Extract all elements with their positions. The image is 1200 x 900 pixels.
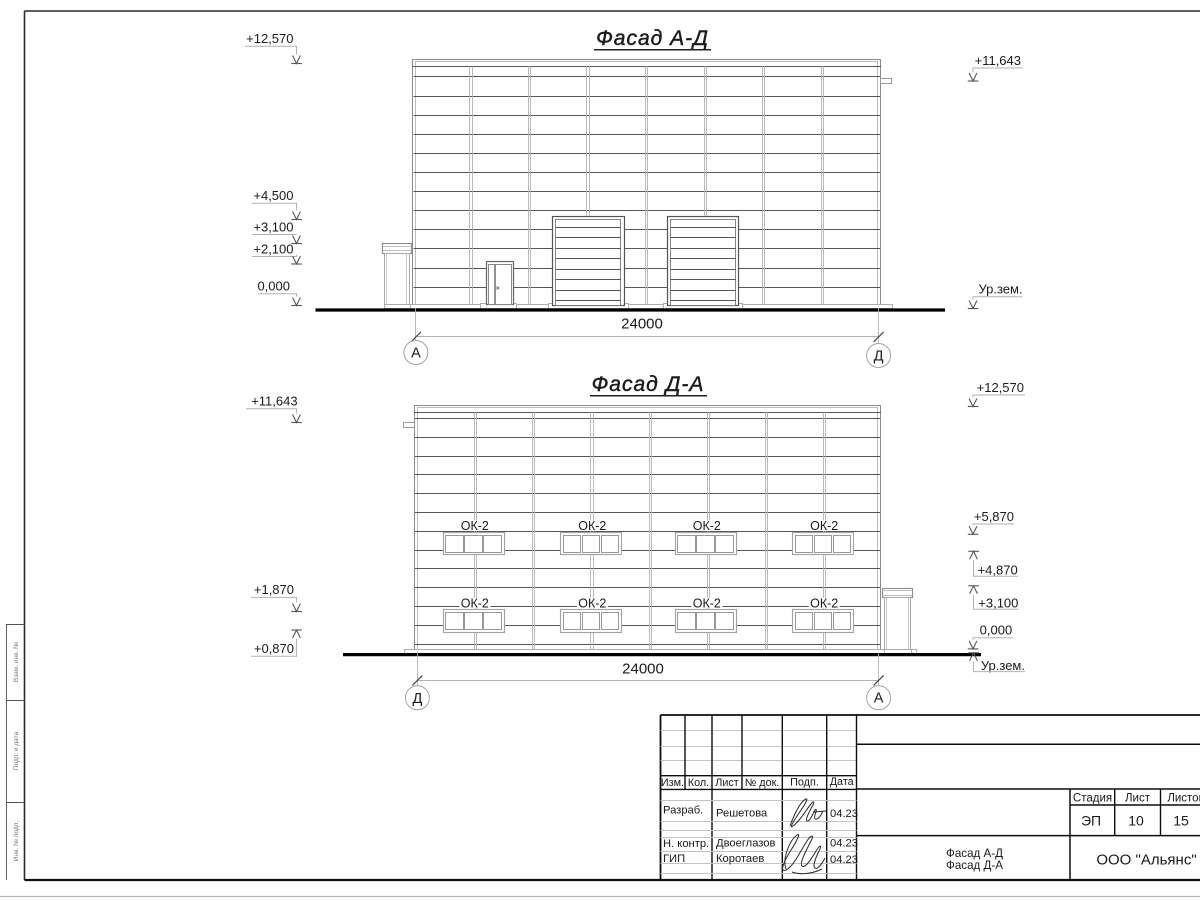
svg-text:Д: Д bbox=[412, 691, 422, 707]
svg-text:+4,870: +4,870 bbox=[978, 562, 1018, 577]
svg-text:Листов: Листов bbox=[1167, 793, 1200, 805]
svg-text:+12,570: +12,570 bbox=[977, 380, 1024, 395]
svg-text:Лист: Лист bbox=[715, 777, 739, 789]
svg-text:ОК-2: ОК-2 bbox=[578, 519, 606, 533]
svg-text:+4,500: +4,500 bbox=[253, 188, 293, 203]
svg-text:ГИП: ГИП bbox=[663, 853, 685, 865]
svg-text:+0,870: +0,870 bbox=[254, 641, 294, 656]
svg-text:Подп. и дата: Подп. и дата bbox=[13, 731, 20, 770]
svg-text:04.23: 04.23 bbox=[830, 854, 858, 866]
svg-text:ОК-2: ОК-2 bbox=[810, 596, 838, 610]
svg-text:+5,870: +5,870 bbox=[974, 509, 1014, 524]
svg-text:24000: 24000 bbox=[621, 316, 663, 333]
svg-text:15: 15 bbox=[1173, 813, 1189, 829]
svg-text:Подп.: Подп. bbox=[790, 777, 819, 789]
svg-text:Кол.: Кол. bbox=[688, 777, 709, 789]
svg-text:ОК-2: ОК-2 bbox=[693, 519, 721, 533]
svg-text:+11,643: +11,643 bbox=[251, 394, 297, 409]
svg-text:04.23: 04.23 bbox=[830, 837, 858, 849]
svg-text:Н. контр.: Н. контр. bbox=[663, 838, 709, 850]
svg-text:ЭП: ЭП bbox=[1081, 813, 1101, 829]
svg-text:Д: Д bbox=[874, 349, 884, 365]
svg-text:Фасад Д-А: Фасад Д-А bbox=[592, 373, 705, 396]
svg-text:Разраб.: Разраб. bbox=[663, 805, 703, 817]
svg-text:Изм.: Изм. bbox=[661, 777, 684, 789]
svg-text:А: А bbox=[874, 691, 884, 707]
svg-text:24000: 24000 bbox=[622, 661, 664, 678]
svg-text:+3,100: +3,100 bbox=[253, 219, 293, 234]
svg-text:Лист: Лист bbox=[1125, 793, 1151, 805]
svg-text:ОК-2: ОК-2 bbox=[461, 519, 489, 533]
svg-text:Ур.зем.: Ур.зем. bbox=[978, 282, 1022, 297]
svg-text:Стадия: Стадия bbox=[1073, 793, 1112, 805]
svg-text:Ур.зем.: Ур.зем. bbox=[981, 658, 1025, 673]
svg-text:+12,570: +12,570 bbox=[246, 31, 293, 46]
svg-text:ОК-2: ОК-2 bbox=[693, 596, 721, 610]
svg-text:+2,100: +2,100 bbox=[253, 241, 293, 256]
svg-text:А: А bbox=[411, 346, 421, 362]
svg-text:Инв. № подл.: Инв. № подл. bbox=[13, 821, 20, 862]
svg-text:ОК-2: ОК-2 bbox=[810, 519, 838, 533]
svg-text:Двоеглазов: Двоеглазов bbox=[716, 838, 776, 850]
svg-text:+11,643: +11,643 bbox=[975, 53, 1021, 68]
svg-text:Дата: Дата bbox=[830, 776, 854, 788]
svg-text:Взам. инв. №: Взам. инв. № bbox=[13, 642, 20, 682]
svg-text:10: 10 bbox=[1128, 813, 1144, 829]
svg-text:Коротаев: Коротаев bbox=[716, 853, 764, 865]
svg-text:Фасад А-Д: Фасад А-Д bbox=[596, 27, 709, 50]
svg-text:№ док.: № док. bbox=[745, 777, 780, 789]
svg-text:Решетова: Решетова bbox=[716, 808, 768, 820]
svg-text:04.23: 04.23 bbox=[830, 808, 858, 820]
svg-text:ООО "Альянс": ООО "Альянс" bbox=[1096, 851, 1196, 868]
svg-text:ОК-2: ОК-2 bbox=[461, 596, 489, 610]
svg-text:ОК-2: ОК-2 bbox=[578, 596, 606, 610]
svg-text:Фасад Д-А: Фасад Д-А bbox=[946, 859, 1003, 872]
svg-text:0,000: 0,000 bbox=[980, 623, 1013, 638]
svg-text:+3,100: +3,100 bbox=[978, 595, 1018, 610]
svg-text:+1,870: +1,870 bbox=[254, 582, 294, 597]
svg-text:0,000: 0,000 bbox=[257, 279, 290, 294]
